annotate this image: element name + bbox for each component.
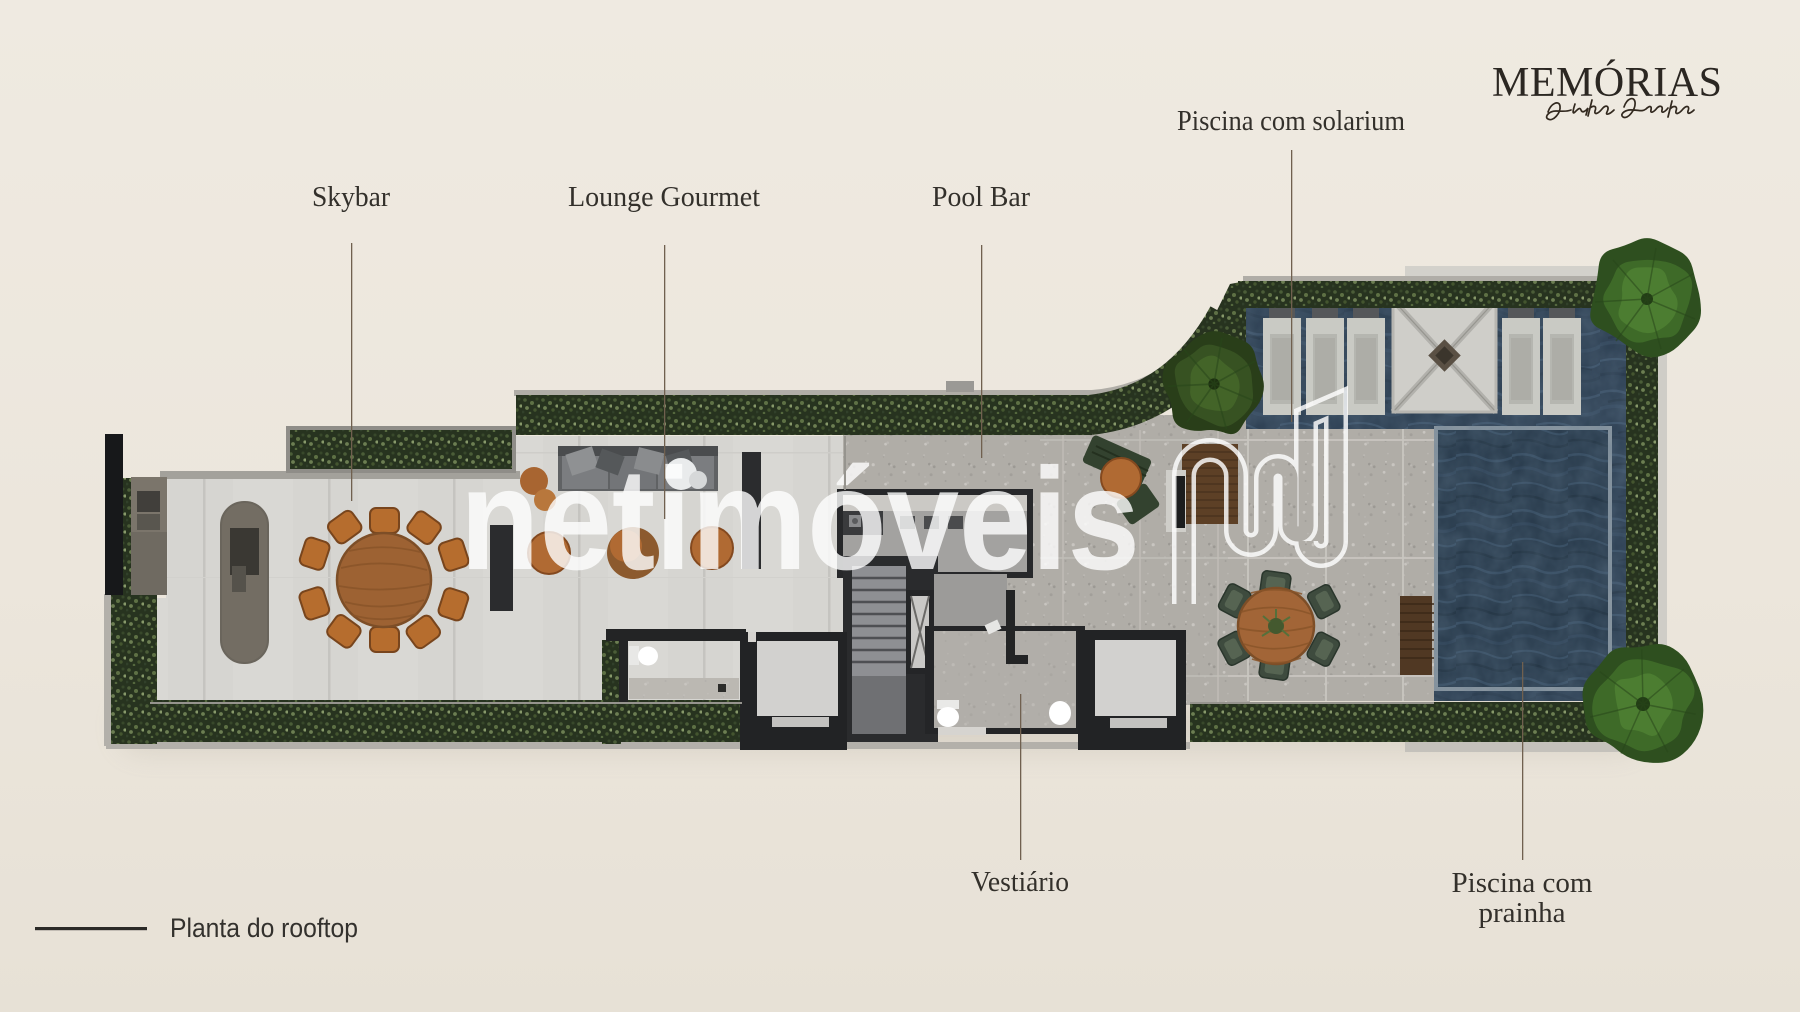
svg-text:Piscina com: Piscina com	[1452, 867, 1593, 899]
svg-text:prainha: prainha	[1479, 897, 1566, 929]
svg-text:Lounge Gourmet: Lounge Gourmet	[568, 181, 760, 213]
svg-text:Vestiário: Vestiário	[971, 866, 1069, 898]
svg-text:Piscina com solarium: Piscina com solarium	[1177, 105, 1405, 137]
svg-text:Skybar: Skybar	[312, 181, 390, 213]
svg-text:MEMÓRIAS: MEMÓRIAS	[1492, 59, 1722, 106]
svg-text:Pool Bar: Pool Bar	[932, 181, 1030, 213]
svg-text:Planta do rooftop: Planta do rooftop	[170, 913, 358, 943]
svg-text:netimóveis: netimóveis	[460, 438, 1140, 600]
